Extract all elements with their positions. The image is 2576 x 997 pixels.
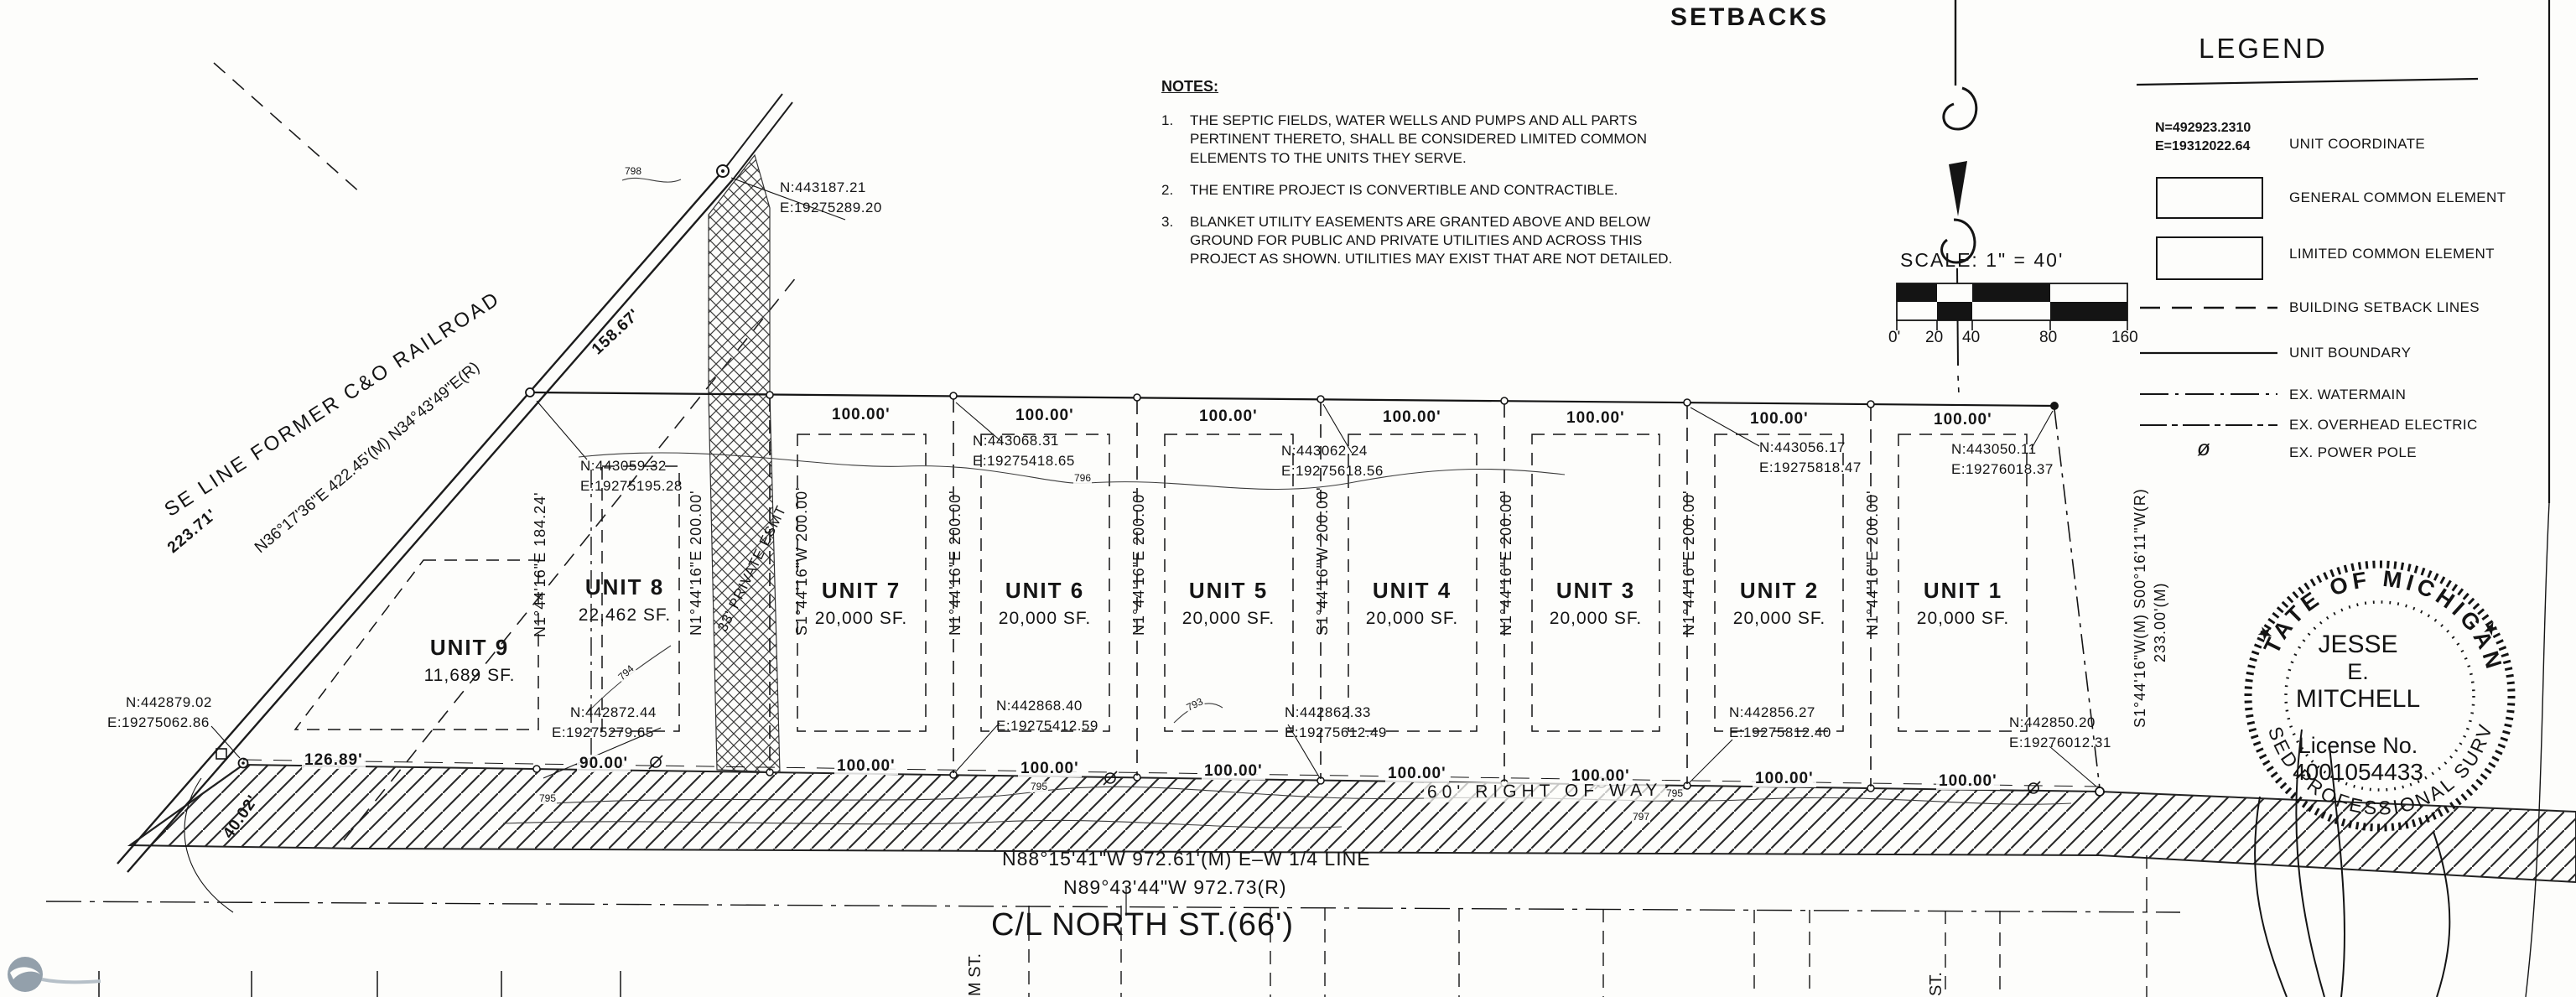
vdim-east-line-distance: 233.00'(M): [2152, 583, 2168, 662]
coord-bottom-unit2-n: N:442856.27: [1729, 704, 1815, 720]
unit-9-name: UNIT 9: [398, 636, 541, 660]
coord-top-unit8-n: N:443059.32: [580, 458, 667, 474]
dim-top-4: 100.00': [1383, 408, 1441, 426]
dim-bottom-90: 90.00': [577, 755, 631, 772]
vdim-boundary-2-1: N1°44'16"E 200.00': [1864, 490, 1881, 636]
coord-top-unit2-e: E:19275818.47: [1759, 460, 1862, 475]
seal-name-line1: JESSE: [2318, 631, 2397, 658]
contour-label-798: 798: [624, 166, 642, 177]
note-number: 1.: [1161, 112, 1190, 167]
unit-8-name: UNIT 8: [553, 575, 696, 600]
coord-railroad-point-e: E:19275289.20: [780, 200, 882, 215]
scale-tick-20: 20: [1925, 329, 1943, 346]
coord-bottom-unit6-n: N:442868.40: [996, 698, 1083, 714]
scale-tick-0: 0': [1888, 329, 1900, 346]
vdim-boundary-6-5: N1°44'16"E 200.00': [1130, 490, 1147, 636]
unit-7-area: 20,000 SF.: [790, 609, 932, 629]
note-item-1: 1. THE SEPTIC FIELDS, WATER WELLS AND PU…: [1161, 112, 1715, 167]
legend-item-power-pole: EX. POWER POLE: [2289, 444, 2417, 460]
coord-bottom-unit4-e: E:19275612.49: [1285, 724, 1387, 740]
scale-bar: [1897, 283, 2127, 330]
legend-power-pole-icon: ø: [2197, 436, 2210, 460]
coord-bottom-unit8-n: N:442872.44: [570, 704, 657, 720]
seal-name-line2: E.: [2347, 659, 2369, 684]
vdim-easement-west: N1°44'16"E 200.00': [688, 490, 704, 636]
right-street-label: ST.: [1927, 972, 1945, 996]
vdim-east-line-bearing: S1°44'16"W(M) S00°16'11"W(R): [2132, 488, 2148, 728]
unit-5-name: UNIT 5: [1157, 579, 1300, 603]
unit-9-area: 11,689 SF.: [398, 666, 541, 686]
seal-license-label: License No.: [2298, 733, 2418, 758]
legend-item-overhead-electric: EX. OVERHEAD ELECTRIC: [2289, 417, 2478, 433]
coord-top-unit6-n: N:443068.31: [973, 433, 1059, 449]
coord-top-unit2-n: N:443056.17: [1759, 439, 1846, 455]
unit-1-name: UNIT 1: [1892, 579, 2034, 603]
contour-label-795-b: 795: [1665, 788, 1684, 799]
north-street-centerline-label: C/L NORTH ST.(66'): [991, 907, 1294, 943]
page-heading: SETBACKS: [1670, 3, 1829, 32]
note-item-3: 3. BLANKET UTILITY EASEMENTS ARE GRANTED…: [1161, 213, 1715, 268]
dim-bottom-2: 100.00': [1018, 760, 1082, 777]
coord-top-unit8-e: E:19275195.28: [580, 478, 683, 494]
unit-6-area: 20,000 SF.: [974, 609, 1116, 629]
legend-item-limited-common: LIMITED COMMON ELEMENT: [2289, 246, 2495, 262]
dim-top-6: 100.00': [1750, 410, 1809, 428]
coord-bottom-unit4-n: N:442862.33: [1285, 704, 1371, 720]
dim-bottom-6: 100.00': [1753, 770, 1816, 787]
vdim-boundary-7-6: N1°44'16"E 200.00': [947, 490, 963, 636]
dim-top-3: 100.00': [1199, 408, 1258, 425]
quarter-line-record-label: N89°43'44"W 972.73(R): [1063, 877, 1287, 899]
legend-item-general-common: GENERAL COMMON ELEMENT: [2289, 190, 2506, 205]
dim-bottom-1: 100.00': [834, 757, 898, 775]
seal-name-line3: MITCHELL: [2296, 685, 2420, 713]
seal-license-number: 4001054433: [2293, 759, 2423, 785]
dim-bottom-7: 100.00': [1936, 772, 2000, 790]
unit-6-name: UNIT 6: [974, 579, 1116, 603]
notes-block: NOTES: 1. THE SEPTIC FIELDS, WATER WELLS…: [1161, 77, 1715, 282]
right-of-way-label: 60' RIGHT OF WAY: [1424, 781, 1666, 802]
scale-tick-160: 160: [2111, 329, 2138, 346]
dim-top-1: 100.00': [832, 406, 891, 423]
legend-title: LEGEND: [2199, 34, 2328, 65]
coord-top-unit1-e: E:19276018.37: [1951, 461, 2054, 477]
note-text: THE ENTIRE PROJECT IS CONVERTIBLE AND CO…: [1190, 181, 1618, 200]
contour-label-795-a: 795: [1030, 782, 1048, 792]
note-text: THE SEPTIC FIELDS, WATER WELLS AND PUMPS…: [1190, 112, 1693, 167]
legend-item-watermain: EX. WATERMAIN: [2289, 387, 2406, 402]
coord-top-unit4-e: E:19275618.56: [1281, 463, 1384, 479]
vdim-boundary-5-4: S1°44'16"W 200.00': [1314, 486, 1331, 636]
scale-tick-40: 40: [1962, 329, 1980, 346]
unit-2-name: UNIT 2: [1708, 579, 1851, 603]
note-item-2: 2. THE ENTIRE PROJECT IS CONVERTIBLE AND…: [1161, 181, 1715, 200]
dim-top-5: 100.00': [1566, 409, 1625, 427]
coord-bottom-west-n: N:442879.02: [126, 694, 212, 710]
contour-label-795-c: 795: [538, 793, 557, 804]
coord-railroad-point-n: N:443187.21: [780, 179, 866, 195]
vdim-boundary-4-3: N1°44'16"E 200.00': [1498, 490, 1514, 636]
dim-bottom-3: 100.00': [1202, 762, 1265, 780]
scale-tick-80: 80: [2039, 329, 2057, 346]
unit-7-name: UNIT 7: [790, 579, 932, 603]
notes-title: NOTES:: [1161, 77, 1218, 96]
coord-bottom-unit1-n: N:442850.20: [2009, 714, 2096, 730]
coord-top-unit1-n: N:443050.11: [1951, 441, 2037, 457]
unit-4-area: 20,000 SF.: [1341, 609, 1483, 629]
dim-bottom-126: 126.89': [302, 751, 366, 769]
survey-plat-page: STATE OF MICHIGAN LICENSED PROFESSIONAL …: [0, 0, 2576, 997]
dim-top-7: 100.00': [1934, 411, 1992, 428]
unit-1-area: 20,000 SF.: [1892, 609, 2034, 629]
coord-bottom-unit8-e: E:19275279.65: [552, 724, 654, 740]
note-text: BLANKET UTILITY EASEMENTS ARE GRANTED AB…: [1190, 213, 1693, 268]
contour-label-797: 797: [1632, 812, 1650, 823]
legend-sample-easting: E=19312022.64: [2155, 139, 2250, 154]
unit-5-area: 20,000 SF.: [1157, 609, 1300, 629]
unit-3-name: UNIT 3: [1524, 579, 1667, 603]
contour-label-796: 796: [1073, 473, 1092, 484]
coord-top-unit6-e: E:19275418.65: [973, 453, 1075, 469]
vdim-boundary-3-2: N1°44'16"E 200.00': [1680, 490, 1697, 636]
unit-8-area: 22,462 SF.: [553, 605, 696, 626]
legend-sample-northing: N=492923.2310: [2155, 121, 2251, 136]
coord-top-unit4-n: N:443062.24: [1281, 443, 1368, 459]
scanner-watermark-logo: [8, 957, 101, 992]
unit-4-name: UNIT 4: [1341, 579, 1483, 603]
dim-bottom-4: 100.00': [1385, 765, 1449, 782]
legend-item-setback-lines: BUILDING SETBACK LINES: [2289, 299, 2480, 315]
coord-bottom-unit6-e: E:19275412.59: [996, 718, 1098, 734]
left-street-label: M ST.: [966, 953, 984, 996]
vdim-unit9-east: N1°44'16"E 184.24': [532, 491, 548, 637]
vdim-easement-east: S1°44'16"W 200.00': [793, 486, 810, 636]
coord-bottom-unit2-e: E:19275812.40: [1729, 724, 1831, 740]
coord-bottom-west-e: E:19275062.86: [107, 714, 210, 730]
legend-item-unit-boundary: UNIT BOUNDARY: [2289, 345, 2411, 361]
quarter-line-measured-label: N88°15'41"W 972.61'(M) E–W 1/4 LINE: [1002, 849, 1371, 870]
dim-top-2: 100.00': [1015, 407, 1074, 424]
unit-3-area: 20,000 SF.: [1524, 609, 1667, 629]
unit-2-area: 20,000 SF.: [1708, 609, 1851, 629]
note-number: 3.: [1161, 213, 1190, 268]
legend-item-unit-coordinate: UNIT COORDINATE: [2289, 136, 2425, 152]
note-number: 2.: [1161, 181, 1190, 200]
coord-bottom-unit1-e: E:19276012.31: [2009, 735, 2111, 750]
scale-label: SCALE: 1" = 40': [1900, 250, 2064, 272]
